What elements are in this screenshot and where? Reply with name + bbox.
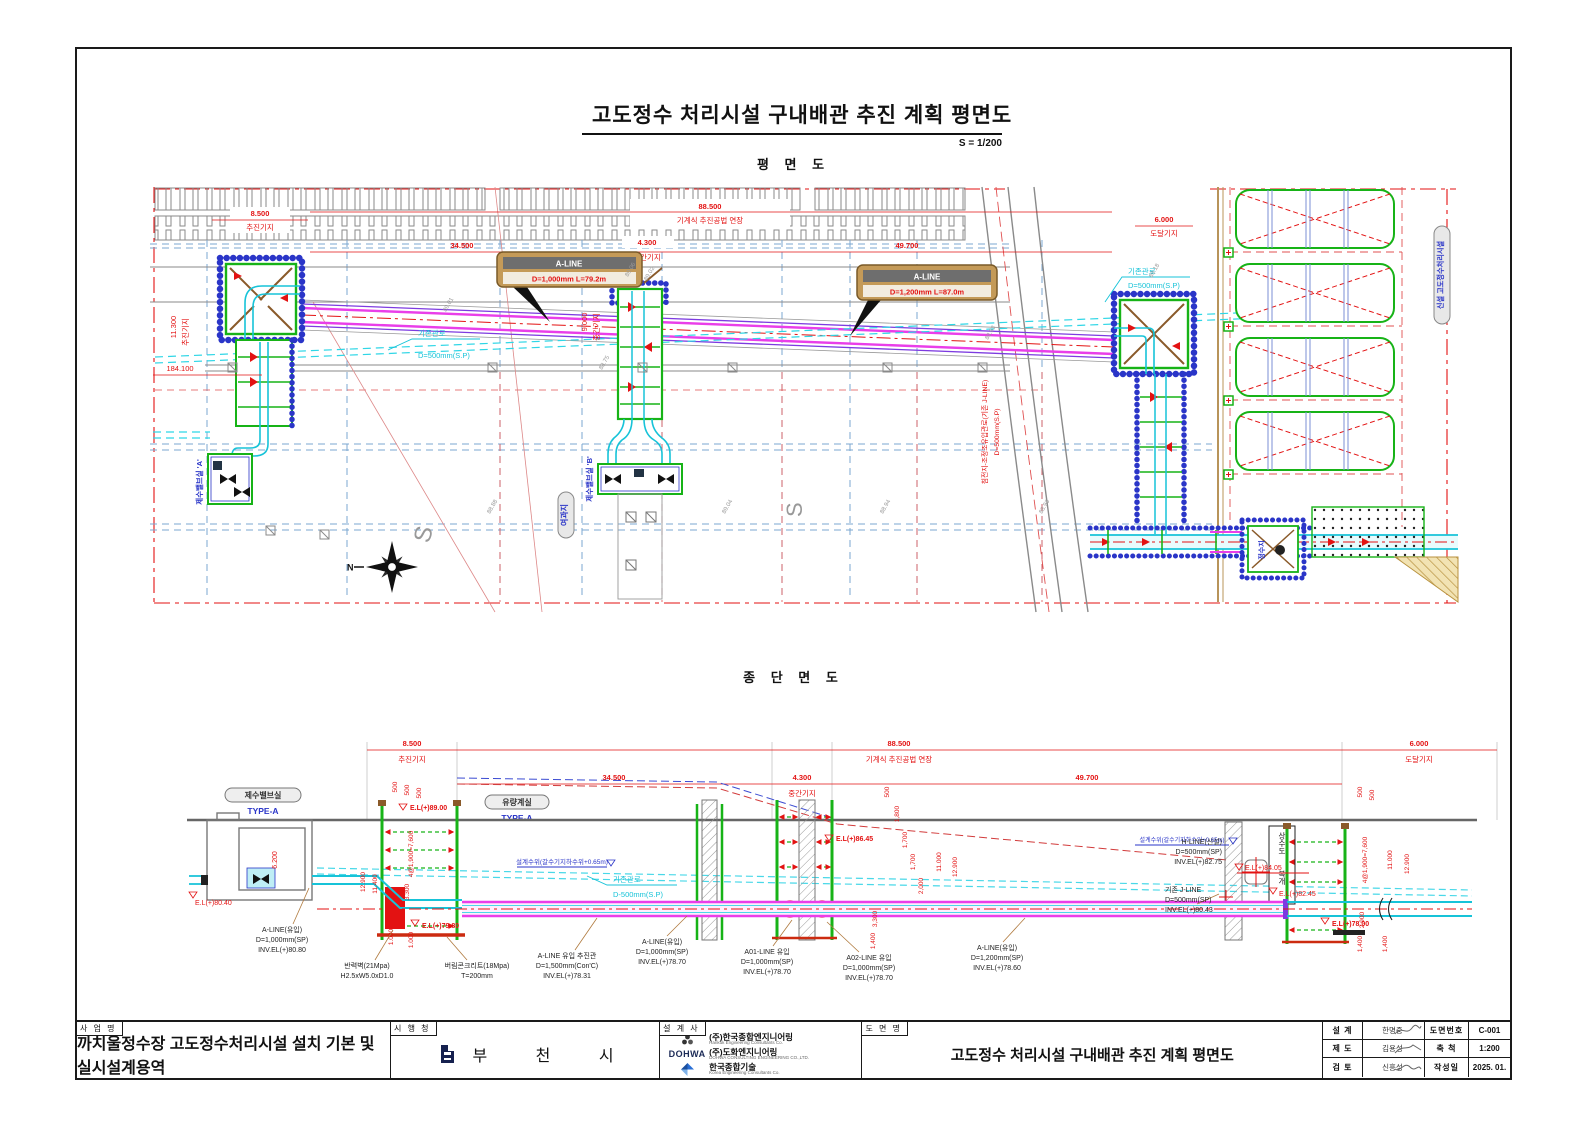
scale-note: S = 1/200 bbox=[582, 138, 1002, 149]
svg-text:89.18: 89.18 bbox=[1149, 262, 1162, 279]
svg-text:복개: 복개 bbox=[1278, 870, 1287, 887]
aline2-title: A-LINE bbox=[914, 273, 941, 282]
curved-road bbox=[982, 187, 1088, 612]
svg-text:기계식 추진공법 연장: 기계식 추진공법 연장 bbox=[866, 754, 932, 764]
svg-text:D=1,000mm(SP): D=1,000mm(SP) bbox=[843, 965, 895, 972]
tank-block bbox=[1224, 187, 1402, 527]
project-name: 까치울정수장 고도정수처리시설 설치 기본 및 실시설계용역 bbox=[77, 1022, 390, 1078]
svg-text:T=200mm: T=200mm bbox=[461, 973, 493, 980]
dim-9000: 9.000 bbox=[580, 313, 589, 332]
basin-label: 정수지 bbox=[1257, 540, 1266, 559]
svg-text:도달기지: 도달기지 bbox=[1405, 755, 1433, 764]
svg-text:11.000: 11.000 bbox=[936, 852, 943, 872]
svg-text:500: 500 bbox=[392, 781, 399, 792]
svg-text:88.88: 88.88 bbox=[487, 498, 500, 515]
plan-heading: 평 면 도 bbox=[77, 154, 1510, 173]
svg-text:3,300: 3,300 bbox=[872, 910, 879, 927]
dim-34500: 34.500 bbox=[451, 241, 474, 250]
svg-text:추진기지: 추진기지 bbox=[398, 754, 426, 764]
existing1-spec: D=500mm(S.P) bbox=[418, 351, 470, 360]
svg-text:D=1,000mm(SP): D=1,000mm(SP) bbox=[256, 937, 308, 944]
dim-8500: 8.500 bbox=[251, 209, 270, 218]
designer-cell: 설 계 사 (주)한국종합엔지니어링 Hankuk Engineering Co… bbox=[660, 1022, 862, 1078]
svg-text:49.700: 49.700 bbox=[1076, 773, 1099, 782]
sign-name: 신흥성 bbox=[1363, 1058, 1425, 1076]
dohwa-logo: DOHWA bbox=[670, 1049, 704, 1059]
svg-text:88.500: 88.500 bbox=[888, 739, 911, 748]
section-heading: 종 단 면 도 bbox=[77, 667, 1510, 686]
svg-text:8.500: 8.500 bbox=[403, 739, 422, 748]
svg-text:88.94: 88.94 bbox=[880, 498, 893, 515]
intermediate-shaft bbox=[612, 268, 666, 419]
svg-text:500: 500 bbox=[1369, 789, 1376, 800]
drawing-name-cell: 도 면 명 고도정수 처리시설 구내배관 추진 계획 평면도 bbox=[862, 1022, 1323, 1078]
svg-text:A01-LINE 유입: A01-LINE 유입 bbox=[744, 948, 789, 956]
svg-text:INV.EL(+)82.75: INV.EL(+)82.75 bbox=[1174, 859, 1222, 866]
svg-text:버림콘크리트(18Mpa): 버림콘크리트(18Mpa) bbox=[445, 961, 510, 970]
valve-room-b: 제수밸브실 'B' bbox=[584, 419, 682, 599]
svg-text:1,400: 1,400 bbox=[1382, 935, 1389, 952]
svg-text:H2.5xW5.0xD1.0: H2.5xW5.0xD1.0 bbox=[341, 973, 394, 980]
flow-room-wall bbox=[702, 800, 717, 940]
svg-text:500: 500 bbox=[404, 784, 411, 795]
svg-text:2,000: 2,000 bbox=[918, 877, 925, 894]
svg-text:1,400: 1,400 bbox=[1357, 935, 1364, 952]
svg-text:A02-LINE 유입: A02-LINE 유입 bbox=[846, 954, 891, 962]
section-dimensions: 8.500 추진기지 88.500 기계식 추진공법 연장 6.000 도달기지… bbox=[367, 739, 1497, 798]
jline-note: 침전지-조정조유입관로(기존 J-LINE) D=500mm(S.P) bbox=[980, 380, 1001, 485]
svg-text:반력벽(21Mpa): 반력벽(21Mpa) bbox=[344, 961, 389, 970]
svg-text:11.400: 11.400 bbox=[372, 874, 379, 894]
svg-text:D=1,000mm(SP): D=1,000mm(SP) bbox=[741, 959, 793, 966]
svg-text:여과지: 여과지 bbox=[559, 504, 569, 526]
dim-184100: 184.100 bbox=[166, 364, 193, 373]
svg-text:A-LINE(유입): A-LINE(유입) bbox=[642, 938, 682, 946]
spot-elevations: 89.06 89.02 88.88 89.04 88.94 89.18 88.8… bbox=[443, 261, 1162, 515]
vdims-mid: 500 1,800 1,700 1,700 2,000 11.000 12.90… bbox=[870, 786, 959, 949]
svg-text:3.300: 3.300 bbox=[404, 883, 411, 900]
svg-text:12.900: 12.900 bbox=[1404, 854, 1411, 874]
sign-name: 한명중 bbox=[1363, 1022, 1425, 1040]
svg-text:6.000: 6.000 bbox=[1410, 739, 1429, 748]
svg-text:유량계실: 유량계실 bbox=[502, 797, 531, 807]
section-drawing: 8.500 추진기지 88.500 기계식 추진공법 연장 6.000 도달기지… bbox=[77, 692, 1514, 1022]
svg-text:11.000: 11.000 bbox=[1387, 850, 1394, 870]
svg-text:4@1,900=7,600: 4@1,900=7,600 bbox=[1362, 836, 1369, 883]
svg-text:A-LINE(유입): A-LINE(유입) bbox=[262, 926, 302, 934]
bucheon-logo bbox=[437, 1043, 457, 1065]
svg-text:기존 J-LINE: 기존 J-LINE bbox=[1165, 885, 1202, 894]
project-cell: 사 업 명 까치울정수장 고도정수처리시설 설치 기본 및 실시설계용역 bbox=[77, 1022, 391, 1078]
existing2-spec: D=500mm(S.P) bbox=[1128, 281, 1180, 290]
svg-text:TYPE-A: TYPE-A bbox=[247, 806, 278, 816]
signature bbox=[1393, 1041, 1423, 1056]
svg-text:INV.EL(+)80.80: INV.EL(+)80.80 bbox=[258, 947, 306, 954]
sheet-title-block: 고도정수 처리시설 구내배관 추진 계획 평면도 S = 1/200 bbox=[582, 99, 1002, 149]
sheet-title: 고도정수 처리시설 구내배관 추진 계획 평면도 bbox=[592, 99, 1012, 129]
plan-drawing: 제수밸브실 'A' bbox=[150, 182, 1462, 617]
svg-text:88.93: 88.93 bbox=[1039, 498, 1052, 515]
svg-text:E.L(+)80.40: E.L(+)80.40 bbox=[195, 900, 232, 907]
svg-text:D=500mm(SP): D=500mm(SP) bbox=[1165, 897, 1211, 904]
dim-9000-label: 중간기지 bbox=[591, 313, 601, 341]
dim-11300-label: 추진기지 bbox=[180, 318, 190, 346]
svg-text:D=1,500mm(Con'C): D=1,500mm(Con'C) bbox=[536, 963, 598, 970]
meta-value: C-001 bbox=[1469, 1022, 1510, 1040]
svg-text:D=500mm(SP): D=500mm(SP) bbox=[1176, 849, 1222, 856]
svg-text:INV.EL(+)78.70: INV.EL(+)78.70 bbox=[638, 959, 686, 966]
svg-text:침전지-조정조유입관로(기존 J-LINE): 침전지-조정조유입관로(기존 J-LINE) bbox=[980, 380, 989, 485]
svg-text:500: 500 bbox=[416, 787, 423, 798]
dim-6000-label: 도달기지 bbox=[1150, 229, 1178, 238]
svg-text:2,900: 2,900 bbox=[1359, 911, 1366, 928]
sign-role: 검 토 bbox=[1323, 1058, 1363, 1076]
svg-text:H-LINE(신설): H-LINE(신설) bbox=[1182, 837, 1223, 846]
svg-text:D=500mm(S.P): D=500mm(S.P) bbox=[994, 408, 1001, 455]
svg-text:1.000: 1.000 bbox=[408, 931, 415, 948]
project-label: 사 업 명 bbox=[77, 1022, 123, 1036]
svg-text:12.900: 12.900 bbox=[360, 872, 367, 892]
svg-text:신설 고도정수처리시설: 신설 고도정수처리시설 bbox=[1436, 241, 1445, 310]
svg-text:D=1,200mm(SP): D=1,200mm(SP) bbox=[971, 955, 1023, 962]
north-letter: N bbox=[347, 563, 354, 573]
road-letter-s2: S bbox=[782, 502, 807, 517]
dim-6000: 6.000 bbox=[1155, 215, 1174, 224]
svg-text:E.L(+)89.00: E.L(+)89.00 bbox=[410, 805, 447, 812]
valve-room-b-label: 제수밸브실 'B' bbox=[584, 456, 594, 502]
dim-49700: 49.700 bbox=[896, 241, 919, 250]
svg-text:D=1,000mm(SP): D=1,000mm(SP) bbox=[636, 949, 688, 956]
svg-text:E.L(+)86.45: E.L(+)86.45 bbox=[836, 836, 873, 843]
sign-role: 제 도 bbox=[1323, 1040, 1363, 1058]
svg-text:E.L(+)79.80: E.L(+)79.80 bbox=[422, 923, 459, 930]
svg-text:INV.EL(+)78.70: INV.EL(+)78.70 bbox=[743, 969, 791, 976]
filter-basin-pill: 여과지 bbox=[558, 492, 574, 538]
meta-value: 1:200 bbox=[1469, 1040, 1510, 1058]
client-cell: 시 행 청 부 천 시 bbox=[391, 1022, 660, 1078]
svg-text:1,700: 1,700 bbox=[902, 831, 909, 848]
dim-88500-label: 기계식 추진공법 연장 bbox=[677, 215, 743, 225]
svg-text:12.900: 12.900 bbox=[952, 857, 959, 877]
svg-text:1,400: 1,400 bbox=[870, 932, 877, 949]
svg-text:A-LINE 유입 추진관: A-LINE 유입 추진관 bbox=[538, 951, 597, 960]
drawing-name: 고도정수 처리시설 구내배관 추진 계획 평면도 bbox=[862, 1022, 1322, 1078]
svg-text:INV.EL(+)80.43: INV.EL(+)80.43 bbox=[1165, 907, 1213, 914]
firm-row: 한국종합기술 Korea Engineering Consultants Co. bbox=[670, 1062, 857, 1076]
meta-label: 도면번호 bbox=[1425, 1022, 1469, 1040]
aline1-spec: D=1,000mm L=79.2m bbox=[532, 275, 607, 284]
svg-text:A-LINE(유입): A-LINE(유입) bbox=[977, 944, 1017, 952]
svg-text:500: 500 bbox=[1357, 786, 1364, 797]
svg-text:4.300: 4.300 bbox=[793, 773, 812, 782]
svg-text:INV.EL(+)78.60: INV.EL(+)78.60 bbox=[973, 965, 1021, 972]
drawing-sheet: 고도정수 처리시설 구내배관 추진 계획 평면도 S = 1/200 평 면 도… bbox=[75, 47, 1512, 1080]
svg-text:TYPE-A: TYPE-A bbox=[501, 813, 532, 823]
svg-text:설계수위(갈수기지하수위+0.65m): 설계수위(갈수기지하수위+0.65m) bbox=[516, 857, 608, 866]
road-letter-s1: S bbox=[409, 523, 439, 545]
svg-text:E.L(+)82.45: E.L(+)82.45 bbox=[1279, 891, 1316, 898]
arrival-shaft bbox=[1114, 294, 1194, 534]
title-block: 사 업 명 까치울정수장 고도정수처리시설 설치 기본 및 실시설계용역 시 행… bbox=[77, 1020, 1510, 1078]
water-level-notes: 설계수위(갈수기지하수위+0.65m) 설계수위(갈수기지하수위+0.65m) bbox=[516, 836, 1237, 867]
dim-4300: 4.300 bbox=[638, 238, 657, 247]
valve-room-pill: 제수밸브실 TYPE-A bbox=[225, 788, 301, 816]
signature bbox=[1393, 1059, 1423, 1074]
right-wall bbox=[1225, 822, 1242, 940]
svg-text:기존관로: 기존관로 bbox=[613, 874, 641, 884]
meta-label: 작성일 bbox=[1425, 1058, 1469, 1076]
svg-text:500: 500 bbox=[884, 786, 891, 797]
dim-8500-label: 추진기지 bbox=[246, 222, 274, 232]
svg-text:89.04: 89.04 bbox=[722, 498, 735, 515]
firm-row: DOHWA (주)도화엔지니어링 DOHWA CONSULTING ENGINE… bbox=[670, 1047, 857, 1061]
client-name: 부 천 시 bbox=[473, 1042, 636, 1066]
jacking-shaft bbox=[220, 258, 302, 426]
svg-text:88.75: 88.75 bbox=[599, 354, 612, 371]
svg-text:1,700: 1,700 bbox=[910, 853, 917, 870]
manifold: 정수지 bbox=[1090, 507, 1458, 602]
approval-cell: 설 계 한명중 도면번호 C-001 제 도 김용성 축 척 1:200 검 토… bbox=[1323, 1022, 1510, 1078]
svg-text:제수밸브실: 제수밸브실 bbox=[245, 790, 282, 800]
svg-text:4@1,900=7,600: 4@1,900=7,600 bbox=[408, 830, 415, 877]
valve-room-a-label: 제수밸브실 'A' bbox=[194, 459, 204, 505]
aline1-title: A-LINE bbox=[556, 260, 583, 269]
vdims-right: 500 500 4@1,900=7,600 11.000 12.900 2,90… bbox=[1357, 786, 1411, 952]
svg-text:E.L(+)84.05: E.L(+)84.05 bbox=[1245, 865, 1282, 872]
svg-text:INV.EL(+)78.31: INV.EL(+)78.31 bbox=[543, 973, 591, 980]
facility-pill: 신설 고도정수처리시설 bbox=[1434, 226, 1450, 324]
svg-text:중간기지: 중간기지 bbox=[788, 788, 816, 798]
aline2-spec: D=1,200mm L=87.0m bbox=[890, 288, 965, 297]
svg-text:D-500mm(S.P): D-500mm(S.P) bbox=[613, 890, 664, 899]
north-compass: N bbox=[347, 541, 418, 593]
svg-text:상수도: 상수도 bbox=[1278, 831, 1287, 855]
meta-value: 2025. 01. bbox=[1469, 1058, 1510, 1076]
sign-role: 설 계 bbox=[1323, 1022, 1363, 1040]
svg-text:INV.EL(+)78.70: INV.EL(+)78.70 bbox=[845, 975, 893, 982]
svg-text:1,800: 1,800 bbox=[894, 805, 901, 822]
drawing-label: 도 면 명 bbox=[862, 1022, 908, 1036]
client-label: 시 행 청 bbox=[391, 1022, 437, 1036]
dim-6200: 6.200 bbox=[272, 851, 279, 869]
dim-88500: 88.500 bbox=[699, 202, 722, 211]
valve-chamber bbox=[207, 813, 312, 900]
dim-11300: 11.300 bbox=[169, 316, 178, 338]
kecc-logo bbox=[681, 1063, 694, 1076]
designer-label: 설 계 사 bbox=[660, 1022, 706, 1036]
section-existing-callout: 기존관로 D-500mm(S.P) bbox=[587, 874, 677, 899]
signature bbox=[1393, 1023, 1423, 1038]
meta-label: 축 척 bbox=[1425, 1040, 1469, 1058]
existing1-name: 기존관로 bbox=[418, 328, 446, 338]
sign-name: 김용성 bbox=[1363, 1040, 1425, 1058]
